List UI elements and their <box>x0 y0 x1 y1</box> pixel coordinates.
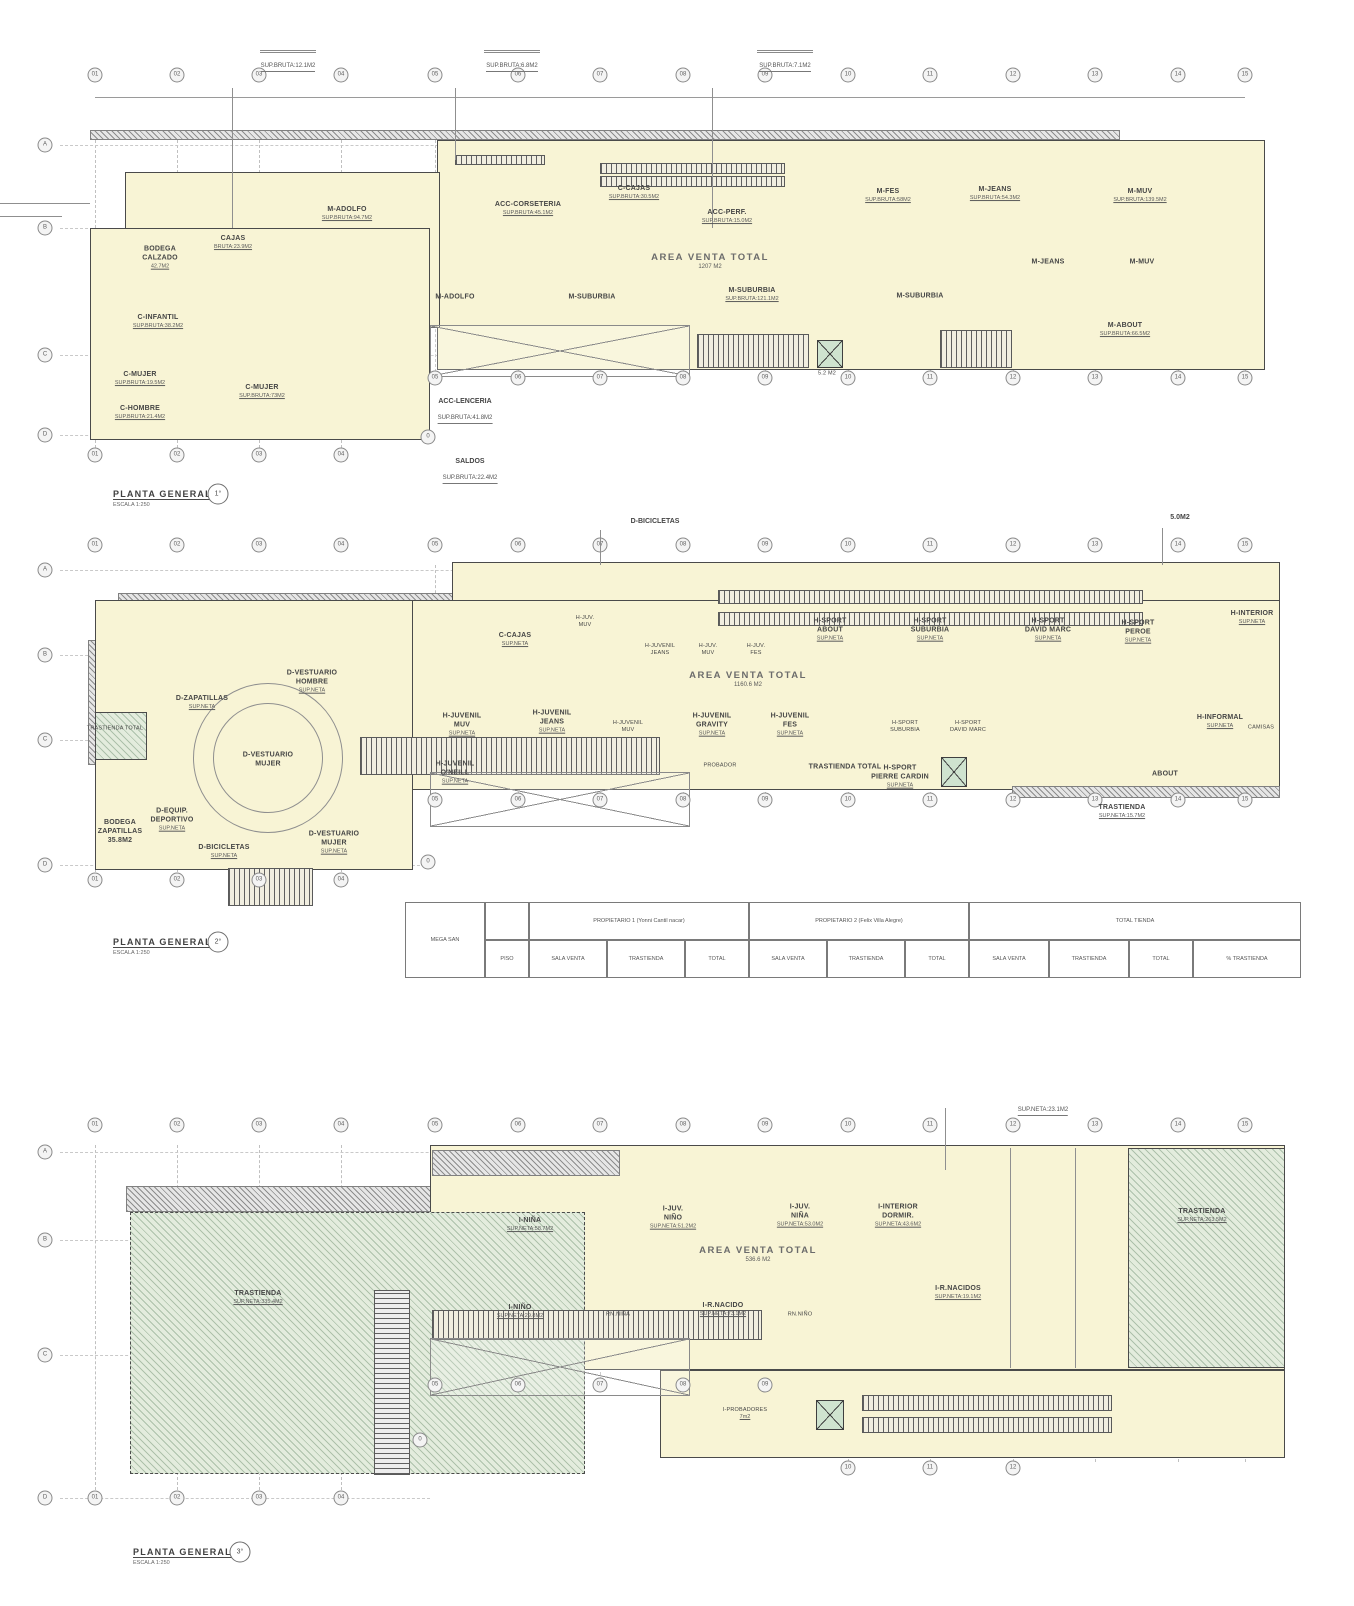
grid-bubble: 07 <box>593 1378 608 1393</box>
room-label: 5.2 M2 <box>818 371 836 378</box>
room-name: ACC-CORSETERIA <box>495 201 561 210</box>
room-label: M-SUBURBIASUP.BRUTA:121.1M2 <box>725 287 778 303</box>
room-name: C-INFANTIL <box>133 314 183 323</box>
room-area: BRUTA:23.9M2 <box>214 244 252 251</box>
grid-bubble: 07 <box>593 793 608 808</box>
room-label: CAJASBRUTA:23.9M2 <box>214 235 252 251</box>
floor-plan-sheet: ABCD010203040506070809101112131415050607… <box>0 0 1354 1606</box>
room-name: H-INTERIOR <box>1231 610 1274 619</box>
room-label: C-CAJASSUP.BRUTA:30.5M2 <box>609 185 659 201</box>
room-name: CAJAS <box>214 235 252 244</box>
grid-bubble: 07 <box>593 1118 608 1133</box>
room-label: H-JUVENIL MUVSUP.NETA <box>443 713 482 738</box>
room-area: SUP.NETA <box>814 635 847 642</box>
grid-bubble: 01 <box>88 448 103 463</box>
room-label: TRASTIENDASUP.NETA:263.5M2 <box>1177 1208 1226 1224</box>
room-name: M-ADOLFO <box>322 206 372 215</box>
room-name: M-MUV <box>1130 259 1155 268</box>
room-label: D-VESTUARIO MUJERSUP.NETA <box>309 831 359 856</box>
room-label: M-JEANSSUP.BRUTA:54.3M2 <box>970 186 1020 202</box>
grid-bubble: 12 <box>1006 1461 1021 1476</box>
grid-bubble: 11 <box>923 793 938 808</box>
room-label: TRASTIENDA TOTAL <box>87 726 143 733</box>
escalator <box>862 1417 1112 1433</box>
room-area: SUP.NETA:335.4M2 <box>233 1299 282 1306</box>
room-area: SUP.NETA <box>443 730 482 737</box>
wall-line <box>232 88 233 228</box>
room-label: M-SUBURBIA <box>896 293 943 302</box>
room-label: CAMISAS <box>1248 725 1274 732</box>
room-name: C-CAJAS <box>609 185 659 194</box>
table-col-header: SALA VENTA <box>969 940 1049 978</box>
trastienda-area <box>1128 1148 1285 1368</box>
plan-scale: ESCALA 1:250 <box>133 1560 232 1566</box>
escalator <box>940 330 1012 368</box>
escalator <box>718 590 1143 604</box>
room-area: SUP.BRUTA:45.1M2 <box>495 210 561 217</box>
grid-bubble: 0 <box>421 855 436 870</box>
room-name: M-MUV <box>1113 188 1166 197</box>
room-label: D-VESTUARIO HOMBRESUP.NETA <box>287 670 337 695</box>
room-area: SUP.NETA:73.1M2 <box>700 1311 746 1318</box>
room-label: H-SPORT DAVID MARC <box>950 720 986 734</box>
room-name: I-NIÑO <box>497 1304 543 1313</box>
wall-line <box>945 1108 946 1170</box>
grid-bubble: 04 <box>334 873 349 888</box>
wall-line <box>600 530 601 565</box>
room-label: TRASTIENDASUP.NETA:15.7M2 <box>1098 804 1145 820</box>
room-name: D-EQUIP. DEPORTIVO <box>150 808 193 826</box>
stair <box>374 1290 410 1475</box>
callout-name: ACC-LENCERIA <box>438 398 493 406</box>
grid-bubble: 13 <box>1088 68 1103 83</box>
grid-bubble: 09 <box>758 371 773 386</box>
grid-bubble: 05 <box>428 1378 443 1393</box>
struck-text <box>484 50 540 53</box>
grid-bubble: 10 <box>841 68 856 83</box>
table-col-header: TOTAL <box>685 940 749 978</box>
room-name: H-JUVENIL JEANS <box>533 710 572 728</box>
callout-name: SALDOS <box>443 458 498 466</box>
plan-title: PLANTA GENERALESCALA 1:250 <box>113 484 212 508</box>
room-label: BODEGA ZAPATILLAS 35.8M2 <box>98 819 143 845</box>
plan-title-text: PLANTA GENERAL <box>113 489 212 500</box>
room-label: C-MUJERSUP.BRUTA:19.5M2 <box>115 371 165 387</box>
callout-area: SUP.BRUTA:41.8M2 <box>438 415 493 424</box>
room-label: C-MUJERSUP.BRUTA:73M2 <box>239 384 285 400</box>
room-label: C-HOMBRESUP.BRUTA:21.4M2 <box>115 405 165 421</box>
room-area: SUP.NETA <box>287 687 337 694</box>
room-area: SUP.BRUTA:139.5M2 <box>1113 197 1166 204</box>
room-name: I-INTERIOR DORMIR. <box>875 1204 921 1222</box>
table-piso-cell: PISO <box>485 940 529 978</box>
grid-bubble: 14 <box>1171 1118 1186 1133</box>
room-label: I-INTERIOR DORMIR.SUP.NETA:43.6M2 <box>875 1204 921 1229</box>
room-label: H-JUVENIL O'NEILLSUP.NETA <box>436 761 475 786</box>
room-name: D-VESTUARIO MUJER <box>309 831 359 849</box>
room-name: D-VESTUARIO HOMBRE <box>287 670 337 688</box>
room-area: SUP.NETA <box>533 727 572 734</box>
grid-bubble: 13 <box>1088 538 1103 553</box>
room-label: D-ZAPATILLASSUP.NETA <box>176 695 228 711</box>
grid-bubble: 01 <box>88 873 103 888</box>
escalator <box>600 163 785 174</box>
grid-bubble: A <box>38 1145 53 1160</box>
room-area: SUP.NETA:53.0M2 <box>777 1221 823 1228</box>
room-label: H-JUVENIL MUV <box>613 720 643 734</box>
elevator-icon <box>816 1400 844 1430</box>
room-name: H-JUVENIL FES <box>771 713 810 731</box>
area-total-label: AREA VENTA TOTAL1160.6 M2 <box>689 670 807 690</box>
table-col-header: TOTAL <box>1129 940 1193 978</box>
room-label: H-JUVENIL GRAVITYSUP.NETA <box>693 713 732 738</box>
callout: SUP.NETA:23.1M2 <box>1018 1098 1068 1116</box>
room-area: SUP.NETA:15.7M2 <box>1098 813 1145 820</box>
room-area: SUP.NETA <box>436 778 475 785</box>
table-group-header: TOTAL TIENDA <box>969 902 1301 940</box>
room-label: D-VESTUARIO MUJER <box>243 751 293 769</box>
room-area: SUP.BRUTA:21.4M2 <box>115 414 165 421</box>
grid-bubble: 09 <box>758 1118 773 1133</box>
grid-bubble: 04 <box>334 448 349 463</box>
table-col-header: SALA VENTA <box>529 940 607 978</box>
grid-bubble: 05 <box>428 1118 443 1133</box>
room-label: I-JUV. NIÑASUP.NETA:53.0M2 <box>777 1204 823 1229</box>
grid-bubble: 14 <box>1171 793 1186 808</box>
grid-bubble: 02 <box>170 448 185 463</box>
room-name: C-HOMBRE <box>115 405 165 414</box>
callout-area: SUP.BRUTA:7.1M2 <box>759 63 810 72</box>
grid-bubble: 05 <box>428 793 443 808</box>
room-name: BODEGA CALZADO <box>142 246 178 264</box>
room-area: SUP.BRUTA:30.5M2 <box>609 194 659 201</box>
room-label: I-NIÑOSUP.NETA:29.8M2 <box>497 1304 543 1320</box>
room-label: M-ADOLFO <box>435 294 474 303</box>
grid-bubble: 04 <box>334 538 349 553</box>
room-area: SUP.BRUTA:15.0M2 <box>702 218 752 225</box>
room-name: H-JUV. MUV <box>576 615 594 629</box>
room-label: H-SPORT PEROESUP.NETA <box>1122 620 1155 645</box>
grid-bubble: 10 <box>841 1461 856 1476</box>
grid-bubble: 02 <box>170 68 185 83</box>
grid-line <box>95 1145 96 1490</box>
table-cell <box>485 902 529 940</box>
room-area: SUP.NETA <box>693 730 732 737</box>
grid-bubble: 03 <box>252 1491 267 1506</box>
room-label: H-JUVENIL JEANS <box>645 643 675 657</box>
grid-bubble: 01 <box>88 1118 103 1133</box>
room-label: H-INFORMALSUP.NETA <box>1197 714 1243 730</box>
room-name: M-ABOUT <box>1100 322 1150 331</box>
callout-area: SUP.BRUTA:6.8M2 <box>486 63 537 72</box>
wall-line <box>1075 1148 1076 1368</box>
callout-area: SUP.NETA:23.1M2 <box>1018 1107 1068 1116</box>
room-area: SUP.NETA <box>771 730 810 737</box>
plan-scale: ESCALA 1:250 <box>113 950 212 956</box>
plan-title: PLANTA GENERALESCALA 1:250 <box>133 1542 232 1566</box>
room-name: TRASTIENDA TOTAL <box>87 726 143 733</box>
plan-scale: ESCALA 1:250 <box>113 502 212 508</box>
room-name: I-JUV. NIÑA <box>777 1204 823 1222</box>
room-label: I-PROBADORES7m2 <box>723 1407 768 1421</box>
callout-name: 5.0M2 <box>1170 514 1189 522</box>
room-name: H-JUVENIL MUV <box>443 713 482 731</box>
wall-hatch <box>126 1186 434 1212</box>
grid-bubble: 09 <box>758 793 773 808</box>
callout-name: D-BICICLETAS <box>631 518 680 526</box>
wall-line <box>1010 1148 1011 1368</box>
escalator <box>697 334 809 368</box>
wall-hatch <box>432 1150 620 1176</box>
room-name: I-R.NACIDO <box>700 1302 746 1311</box>
room-name: D-VESTUARIO MUJER <box>243 751 293 769</box>
table-col-header: TRASTIENDA <box>827 940 905 978</box>
room-area: SUP.NETA:263.5M2 <box>1177 1217 1226 1224</box>
struck-text <box>260 50 316 53</box>
grid-bubble: 01 <box>88 1491 103 1506</box>
room-name: CAMISAS <box>1248 725 1274 732</box>
grid-bubble: 15 <box>1238 1118 1253 1133</box>
grid-bubble: 10 <box>841 793 856 808</box>
room-area: 1160.6 M2 <box>689 682 807 690</box>
grid-bubble: 12 <box>1006 1118 1021 1133</box>
grid-bubble: 14 <box>1171 68 1186 83</box>
room-name: M-SUBURBIA <box>725 287 778 296</box>
room-name: AREA VENTA TOTAL <box>651 252 769 264</box>
room-label: M-ABOUTSUP.BRUTA:66.5M2 <box>1100 322 1150 338</box>
grid-bubble: 06 <box>511 1378 526 1393</box>
room-label: H-SPORT SUBURBIASUP.NETA <box>911 618 950 643</box>
grid-bubble: 05 <box>428 371 443 386</box>
room-label: I-JUV. NIÑOSUP.NETA:51.2M2 <box>650 1206 696 1231</box>
plan-number-bubble: 2° <box>208 932 229 953</box>
callout: SUP.BRUTA:12.1M2 <box>260 50 316 72</box>
grid-bubble: 09 <box>758 1378 773 1393</box>
grid-bubble: 07 <box>593 68 608 83</box>
plan-number-bubble: 3° <box>230 1542 251 1563</box>
room-name: TRASTIENDA <box>1177 1208 1226 1217</box>
room-label: ABOUT <box>1152 771 1178 780</box>
room-name: ABOUT <box>1152 771 1178 780</box>
room-name: M-JEANS <box>1032 259 1065 268</box>
room-label: TRASTIENDASUP.NETA:335.4M2 <box>233 1290 282 1306</box>
room-name: BODEGA ZAPATILLAS 35.8M2 <box>98 819 143 845</box>
wall-line <box>0 216 62 217</box>
plan-title: PLANTA GENERALESCALA 1:250 <box>113 932 212 956</box>
grid-bubble: 03 <box>252 538 267 553</box>
room-label: H-SPORT DAVID MARCSUP.NETA <box>1025 618 1071 643</box>
grid-bubble: 02 <box>170 873 185 888</box>
room-label: M-MUVSUP.BRUTA:139.5M2 <box>1113 188 1166 204</box>
room-area: SUP.BRUTA:66.5M2 <box>1100 331 1150 338</box>
grid-bubble: D <box>38 428 53 443</box>
room-name: M-ADOLFO <box>435 294 474 303</box>
grid-bubble: D <box>38 858 53 873</box>
room-name: H-SPORT DAVID MARC <box>1025 618 1071 636</box>
room-name: M-JEANS <box>970 186 1020 195</box>
room-label: H-JUV. MUV <box>699 643 717 657</box>
grid-bubble: 08 <box>676 68 691 83</box>
elevator-icon <box>941 757 967 787</box>
room-label: I-NIÑASUP.NETA:58.7M2 <box>507 1217 553 1233</box>
room-area: SUP.BRUTA:19.5M2 <box>115 380 165 387</box>
grid-bubble: 11 <box>923 68 938 83</box>
grid-bubble: B <box>38 1233 53 1248</box>
room-name: D-BICICLETAS <box>198 844 249 853</box>
room-name: 5.2 M2 <box>818 371 836 378</box>
grid-bubble: 04 <box>334 68 349 83</box>
room-area: SUP.NETA <box>150 825 193 832</box>
wall-line <box>455 88 456 160</box>
grid-bubble: A <box>38 563 53 578</box>
room-area: SUP.NETA <box>1025 635 1071 642</box>
room-area: SUP.NETA:43.6M2 <box>875 1221 921 1228</box>
room-name: H-SPORT PEROE <box>1122 620 1155 638</box>
grid-bubble: 11 <box>923 1461 938 1476</box>
room-name: I-R.NACIDOS <box>935 1285 981 1294</box>
trastienda-area <box>95 712 147 760</box>
room-area: SUP.NETA <box>1197 723 1243 730</box>
grid-bubble: A <box>38 138 53 153</box>
room-label: H-JUVENIL JEANSSUP.NETA <box>533 710 572 735</box>
grid-bubble: 03 <box>252 1118 267 1133</box>
grid-bubble: 03 <box>252 873 267 888</box>
room-area: SUP.BRUTA:94.7M2 <box>322 215 372 222</box>
room-label: ACC-CORSETERIASUP.BRUTA:45.1M2 <box>495 201 561 217</box>
grid-bubble: 15 <box>1238 793 1253 808</box>
room-area: SUP.NETA <box>198 853 249 860</box>
grid-bubble: 03 <box>252 448 267 463</box>
room-area: 7m2 <box>723 1414 768 1421</box>
room-label: H-SPORT ABOUTSUP.NETA <box>814 618 847 643</box>
grid-bubble: 08 <box>676 538 691 553</box>
table-col-header: % TRASTIENDA <box>1193 940 1301 978</box>
room-area: SUP.BRUTA:121.1M2 <box>725 296 778 303</box>
loading-dock-cross <box>430 325 690 377</box>
callout-area: SUP.BRUTA:22.4M2 <box>443 475 498 484</box>
room-area: SUP.NETA:58.7M2 <box>507 1226 553 1233</box>
room-name: H-SPORT SUBURBIA <box>911 618 950 636</box>
grid-bubble: 15 <box>1238 371 1253 386</box>
room-name: I-NIÑA <box>507 1217 553 1226</box>
grid-bubble: D <box>38 1491 53 1506</box>
room-area: SUP.BRUTA:58M2 <box>865 197 911 204</box>
room-label: PROBADOR <box>703 763 736 770</box>
room-name: H-SPORT ABOUT <box>814 618 847 636</box>
callout: SALDOSSUP.BRUTA:22.4M2 <box>443 458 498 484</box>
callout: ACC-LENCERIASUP.BRUTA:41.8M2 <box>438 398 493 424</box>
grid-bubble: B <box>38 648 53 663</box>
escalator <box>228 868 313 906</box>
plan-title-text: PLANTA GENERAL <box>113 937 212 948</box>
area-total-label: AREA VENTA TOTAL1207 M2 <box>651 252 769 272</box>
room-name: H-JUVENIL JEANS <box>645 643 675 657</box>
room-name: ACC-PERF. <box>702 209 752 218</box>
room-name: C-CAJAS <box>499 632 532 641</box>
grid-bubble: 0 <box>421 430 436 445</box>
grid-bubble: C <box>38 1348 53 1363</box>
room-name: H-JUVENIL O'NEILL <box>436 761 475 779</box>
room-name: C-MUJER <box>115 371 165 380</box>
grid-bubble: 02 <box>170 1118 185 1133</box>
grid-bubble: 12 <box>1006 68 1021 83</box>
callout: D-BICICLETAS <box>631 518 680 526</box>
room-area: 1207 M2 <box>651 264 769 272</box>
room-label: H-SPORT SUBURBIA <box>890 720 920 734</box>
wall-line <box>0 203 90 204</box>
room-name: M-FES <box>865 188 911 197</box>
grid-bubble: 08 <box>676 1378 691 1393</box>
grid-bubble: 02 <box>170 538 185 553</box>
room-area: SUP.BRUTA:38.2M2 <box>133 323 183 330</box>
plan-number-bubble: 1° <box>208 484 229 505</box>
grid-bubble: 08 <box>676 1118 691 1133</box>
room-name: M-SUBURBIA <box>568 294 615 303</box>
grid-bubble: C <box>38 348 53 363</box>
table-group-header: PROPIETARIO 1 (Yonni Cantil nacar) <box>529 902 749 940</box>
room-area: SUP.NETA <box>911 635 950 642</box>
grid-bubble: 05 <box>428 68 443 83</box>
room-name: TRASTIENDA <box>233 1290 282 1299</box>
room-label: M-MUV <box>1130 259 1155 268</box>
room-area: SUP.NETA:29.8M2 <box>497 1313 543 1320</box>
room-name: D-ZAPATILLAS <box>176 695 228 704</box>
room-name: TRASTIENDA TOTAL <box>809 764 882 773</box>
room-name: I-JUV. NIÑO <box>650 1206 696 1224</box>
room-area: SUP.NETA:19.1M2 <box>935 1294 981 1301</box>
room-label: C-CAJASSUP.NETA <box>499 632 532 648</box>
grid-bubble: 11 <box>923 371 938 386</box>
room-name: TRASTIENDA <box>1098 804 1145 813</box>
grid-bubble: 13 <box>1088 1118 1103 1133</box>
room-label: RN.NIÑA <box>606 1312 630 1319</box>
room-name: I-PROBADORES <box>723 1407 768 1414</box>
room-label: I-R.NACIDOSUP.NETA:73.1M2 <box>700 1302 746 1318</box>
grid-bubble: 11 <box>923 538 938 553</box>
grid-bubble: 12 <box>1006 793 1021 808</box>
room-name: RN.NIÑA <box>606 1312 630 1319</box>
grid-bubble: 05 <box>428 538 443 553</box>
table-col-header: TRASTIENDA <box>607 940 685 978</box>
room-area: SUP.BRUTA:54.3M2 <box>970 195 1020 202</box>
grid-bubble: 07 <box>593 371 608 386</box>
room-area: SUP.BRUTA:73M2 <box>239 393 285 400</box>
grid-bubble: B <box>38 221 53 236</box>
plan-title-text: PLANTA GENERAL <box>133 1547 232 1558</box>
escalator <box>360 737 660 775</box>
wall-line <box>712 88 713 228</box>
escalator <box>862 1395 1112 1411</box>
grid-bubble: 10 <box>841 538 856 553</box>
table-corner-cell: MEGA SAN <box>405 902 485 978</box>
room-area: SUP.NETA:51.2M2 <box>650 1223 696 1230</box>
room-area: 536.6 M2 <box>699 1257 817 1265</box>
escalator <box>455 155 545 165</box>
loading-dock-cross <box>430 1338 690 1396</box>
room-name: AREA VENTA TOTAL <box>699 1245 817 1257</box>
room-name: H-JUV. MUV <box>699 643 717 657</box>
grid-bubble: 15 <box>1238 538 1253 553</box>
room-label: M-SUBURBIA <box>568 294 615 303</box>
grid-bubble: 11 <box>923 1118 938 1133</box>
room-name: AREA VENTA TOTAL <box>689 670 807 682</box>
room-area: 42.7M2 <box>142 263 178 270</box>
room-label: H-JUV. MUV <box>576 615 594 629</box>
grid-bubble: 10 <box>841 1118 856 1133</box>
room-label: D-EQUIP. DEPORTIVOSUP.NETA <box>150 808 193 833</box>
elevator-icon <box>817 340 843 368</box>
struck-text <box>757 50 813 53</box>
